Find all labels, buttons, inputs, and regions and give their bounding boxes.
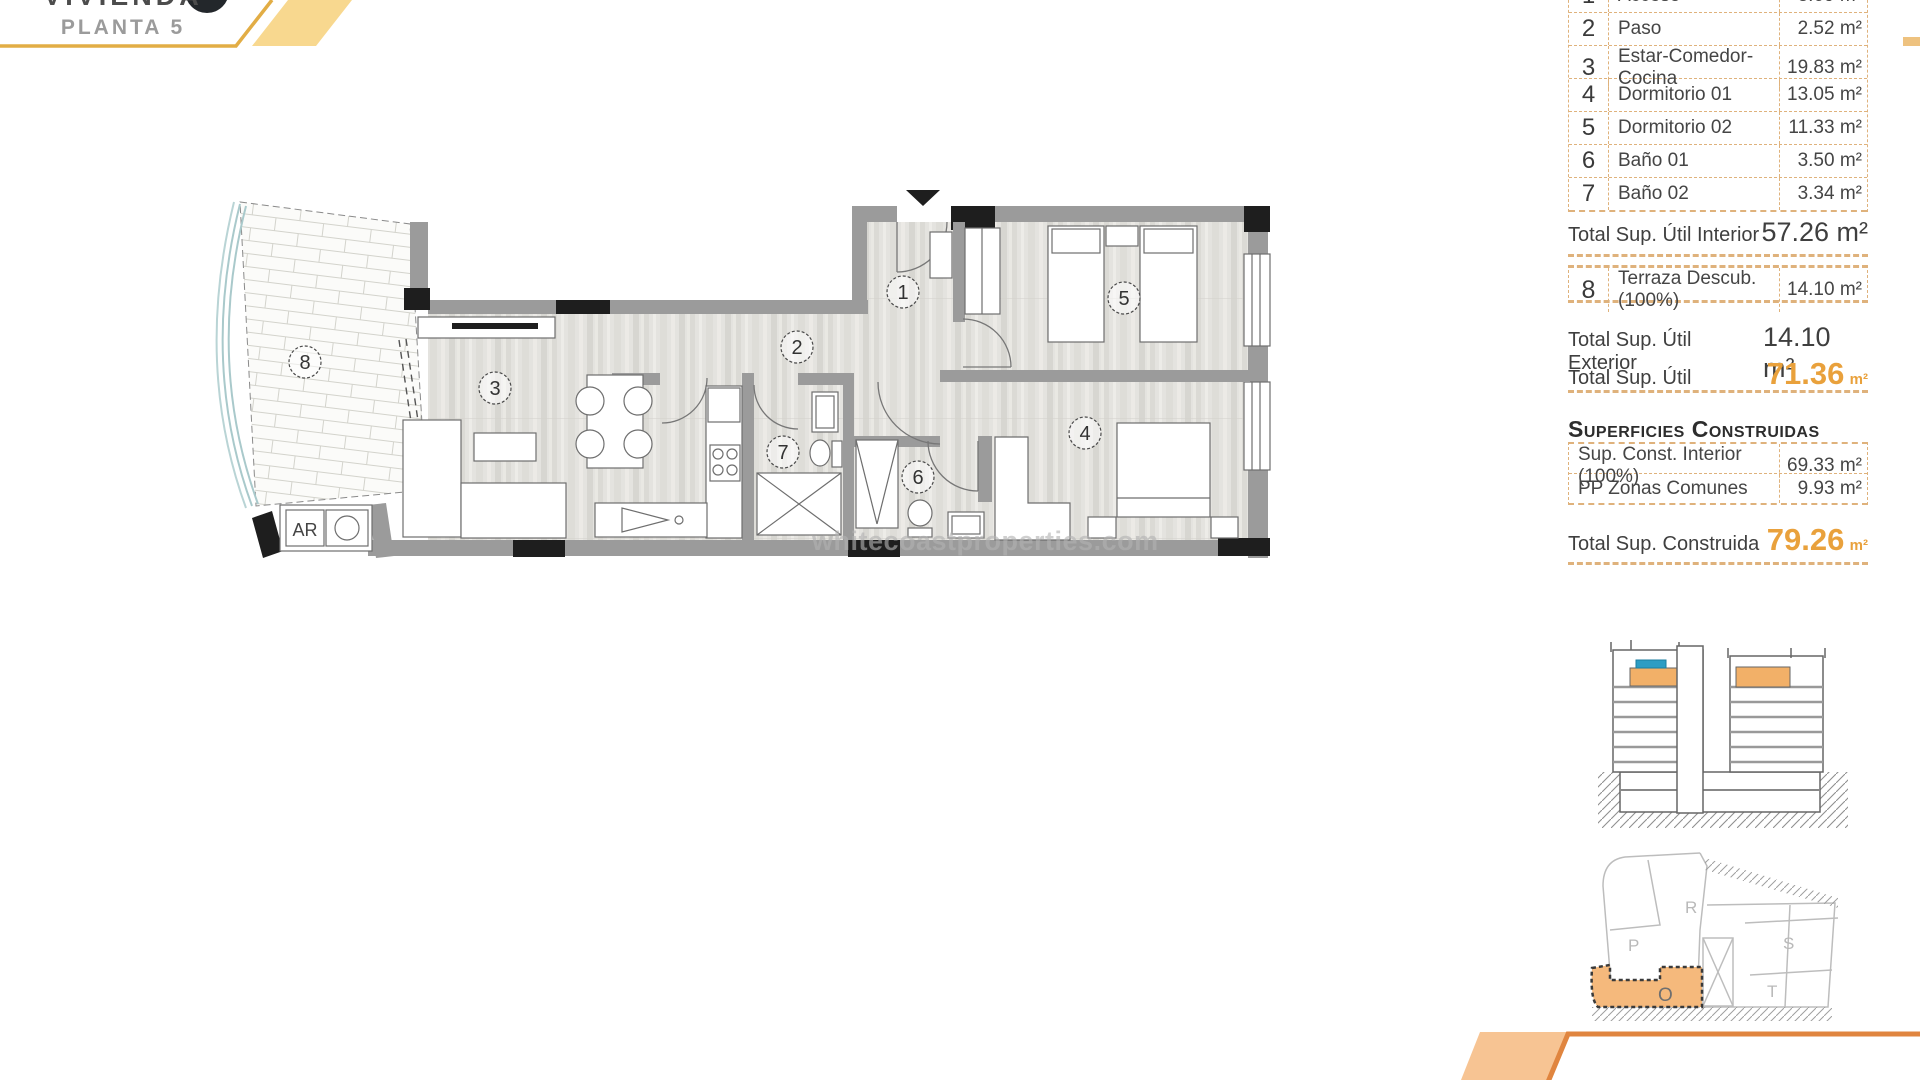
sofa [403,420,461,537]
row-value: 9.93 m² [1779,474,1869,503]
fridge [708,388,740,422]
coffee-table [474,433,536,461]
block-label-t: T [1767,982,1777,1001]
row-name: Terraza Descub.(100%) [1609,268,1779,312]
total-util: Total Sup. Útil 71.36 m² [1568,356,1868,392]
total-value: 79.26 m² [1767,522,1868,558]
chair [576,387,604,415]
room-number-6: 6 [912,467,923,489]
room-number-2: 2 [791,337,802,359]
total-constructed: Total Sup. Construida 79.26 m² [1568,522,1868,565]
block-label-p: P [1628,936,1639,955]
row-value: 13.05 m² [1779,79,1869,111]
table-row: 4 Dormitorio 01 13.05 m² [1569,79,1867,112]
row-name: PP Zonas Comunes [1569,478,1779,500]
block-label-s: S [1783,934,1794,953]
row-num: 4 [1569,79,1609,111]
room-number-1: 1 [897,282,908,304]
areas-table: 1 Acceso 3.69 m² 2 Paso 2.52 m² 3 Estar-… [1568,0,1868,212]
constructed-table: Sup. Const. Interior (100%) 69.33 m² PP … [1568,442,1868,505]
floorplan-sheet: AR 1 2 3 4 5 6 7 8 [0,0,1920,1080]
table-row: 2 Paso 2.52 m² [1569,13,1867,46]
row-name: Acceso [1609,0,1779,7]
nightstand [1211,517,1238,538]
row-num: 6 [1569,145,1609,177]
chair [624,430,652,458]
shower [856,440,898,528]
building-section-diagram [1598,640,1848,828]
floor-label: PLANTA 5 [28,16,218,40]
highlight-floor-left [1630,668,1677,686]
total-label: Total Sup. Construida [1568,533,1759,556]
row-value: 14.10 m² [1779,268,1869,312]
table-row: Sup. Const. Interior (100%) 69.33 m² [1569,444,1867,473]
tv [452,323,538,329]
room-number-5: 5 [1118,288,1129,310]
highlighted-block-o [1592,965,1702,1007]
areas-panel: 1 Acceso 3.69 m² 2 Paso 2.52 m² 3 Estar-… [1568,0,1868,600]
room-number-4: 4 [1079,423,1090,445]
room-number-8: 8 [299,352,310,374]
core [1677,646,1703,813]
sheet-title: VIVIENDA [28,0,218,12]
row-name: Paso [1609,18,1779,40]
entrance-arrow-icon [906,190,940,206]
table-row: PP Zonas Comunes 9.93 m² [1569,473,1867,503]
row-num: 1 [1569,0,1609,12]
row-value: 3.34 m² [1779,178,1869,210]
total-interior: Total Sup. Útil Interior 57.26 m² [1568,217,1868,257]
room-number-3: 3 [489,378,500,400]
row-num: 8 [1569,268,1609,312]
pool [1636,660,1666,668]
chair [576,430,604,458]
sofa [461,483,566,538]
total-label: Total Sup. Útil Interior [1568,224,1759,247]
toilet [908,500,932,526]
row-name: Baño 02 [1609,183,1779,205]
entrance-opening [897,206,951,222]
room-number-7: 7 [777,442,788,464]
table-row: 7 Baño 02 3.34 m² [1569,178,1867,212]
block-label-o: O [1658,985,1673,1006]
nightstand [1106,226,1138,246]
site-plan-diagram: R P S T O [1592,853,1838,1021]
row-value: 11.33 m² [1779,112,1869,144]
table-row: 3 Estar-Comedor-Cocina 19.83 m² [1569,46,1867,79]
highlight-floor-right [1736,667,1790,687]
kitchen-island [595,503,707,537]
row-num: 5 [1569,112,1609,144]
row-name: Dormitorio 02 [1609,117,1779,139]
row-num: 2 [1569,13,1609,45]
row-name: Dormitorio 01 [1609,84,1779,106]
total-label: Total Sup. Útil [1568,367,1691,390]
footer-orange-line [1548,1034,1920,1080]
footer-band [1461,1032,1920,1080]
edge-mark [1903,37,1920,46]
terrace-row: 8 Terraza Descub.(100%) 14.10 m² [1568,265,1868,303]
row-value: 3.50 m² [1779,145,1869,177]
block-label-r: R [1685,898,1697,917]
row-name: Baño 01 [1609,150,1779,172]
row-value: 2.52 m² [1779,13,1869,45]
chair [624,387,652,415]
total-value: 57.26 m² [1761,217,1868,248]
closet [930,232,952,278]
constructed-heading: Superficies Construidas [1568,416,1868,443]
ar-label: AR [292,520,317,540]
terrace-8 [217,202,426,508]
apartment-plan: AR 1 2 3 4 5 6 7 8 [217,190,1270,558]
table-row: 6 Baño 01 3.50 m² [1569,145,1867,178]
table-row: 1 Acceso 3.69 m² [1569,0,1867,13]
row-num: 7 [1569,178,1609,210]
row-value: 3.69 m² [1779,0,1869,12]
table-row: 5 Dormitorio 02 11.33 m² [1569,112,1867,145]
watermark: whitecoastproperties.com [812,526,1132,557]
bed-double [1117,423,1210,517]
total-value: 71.36 m² [1767,356,1868,392]
toilet [810,440,830,466]
